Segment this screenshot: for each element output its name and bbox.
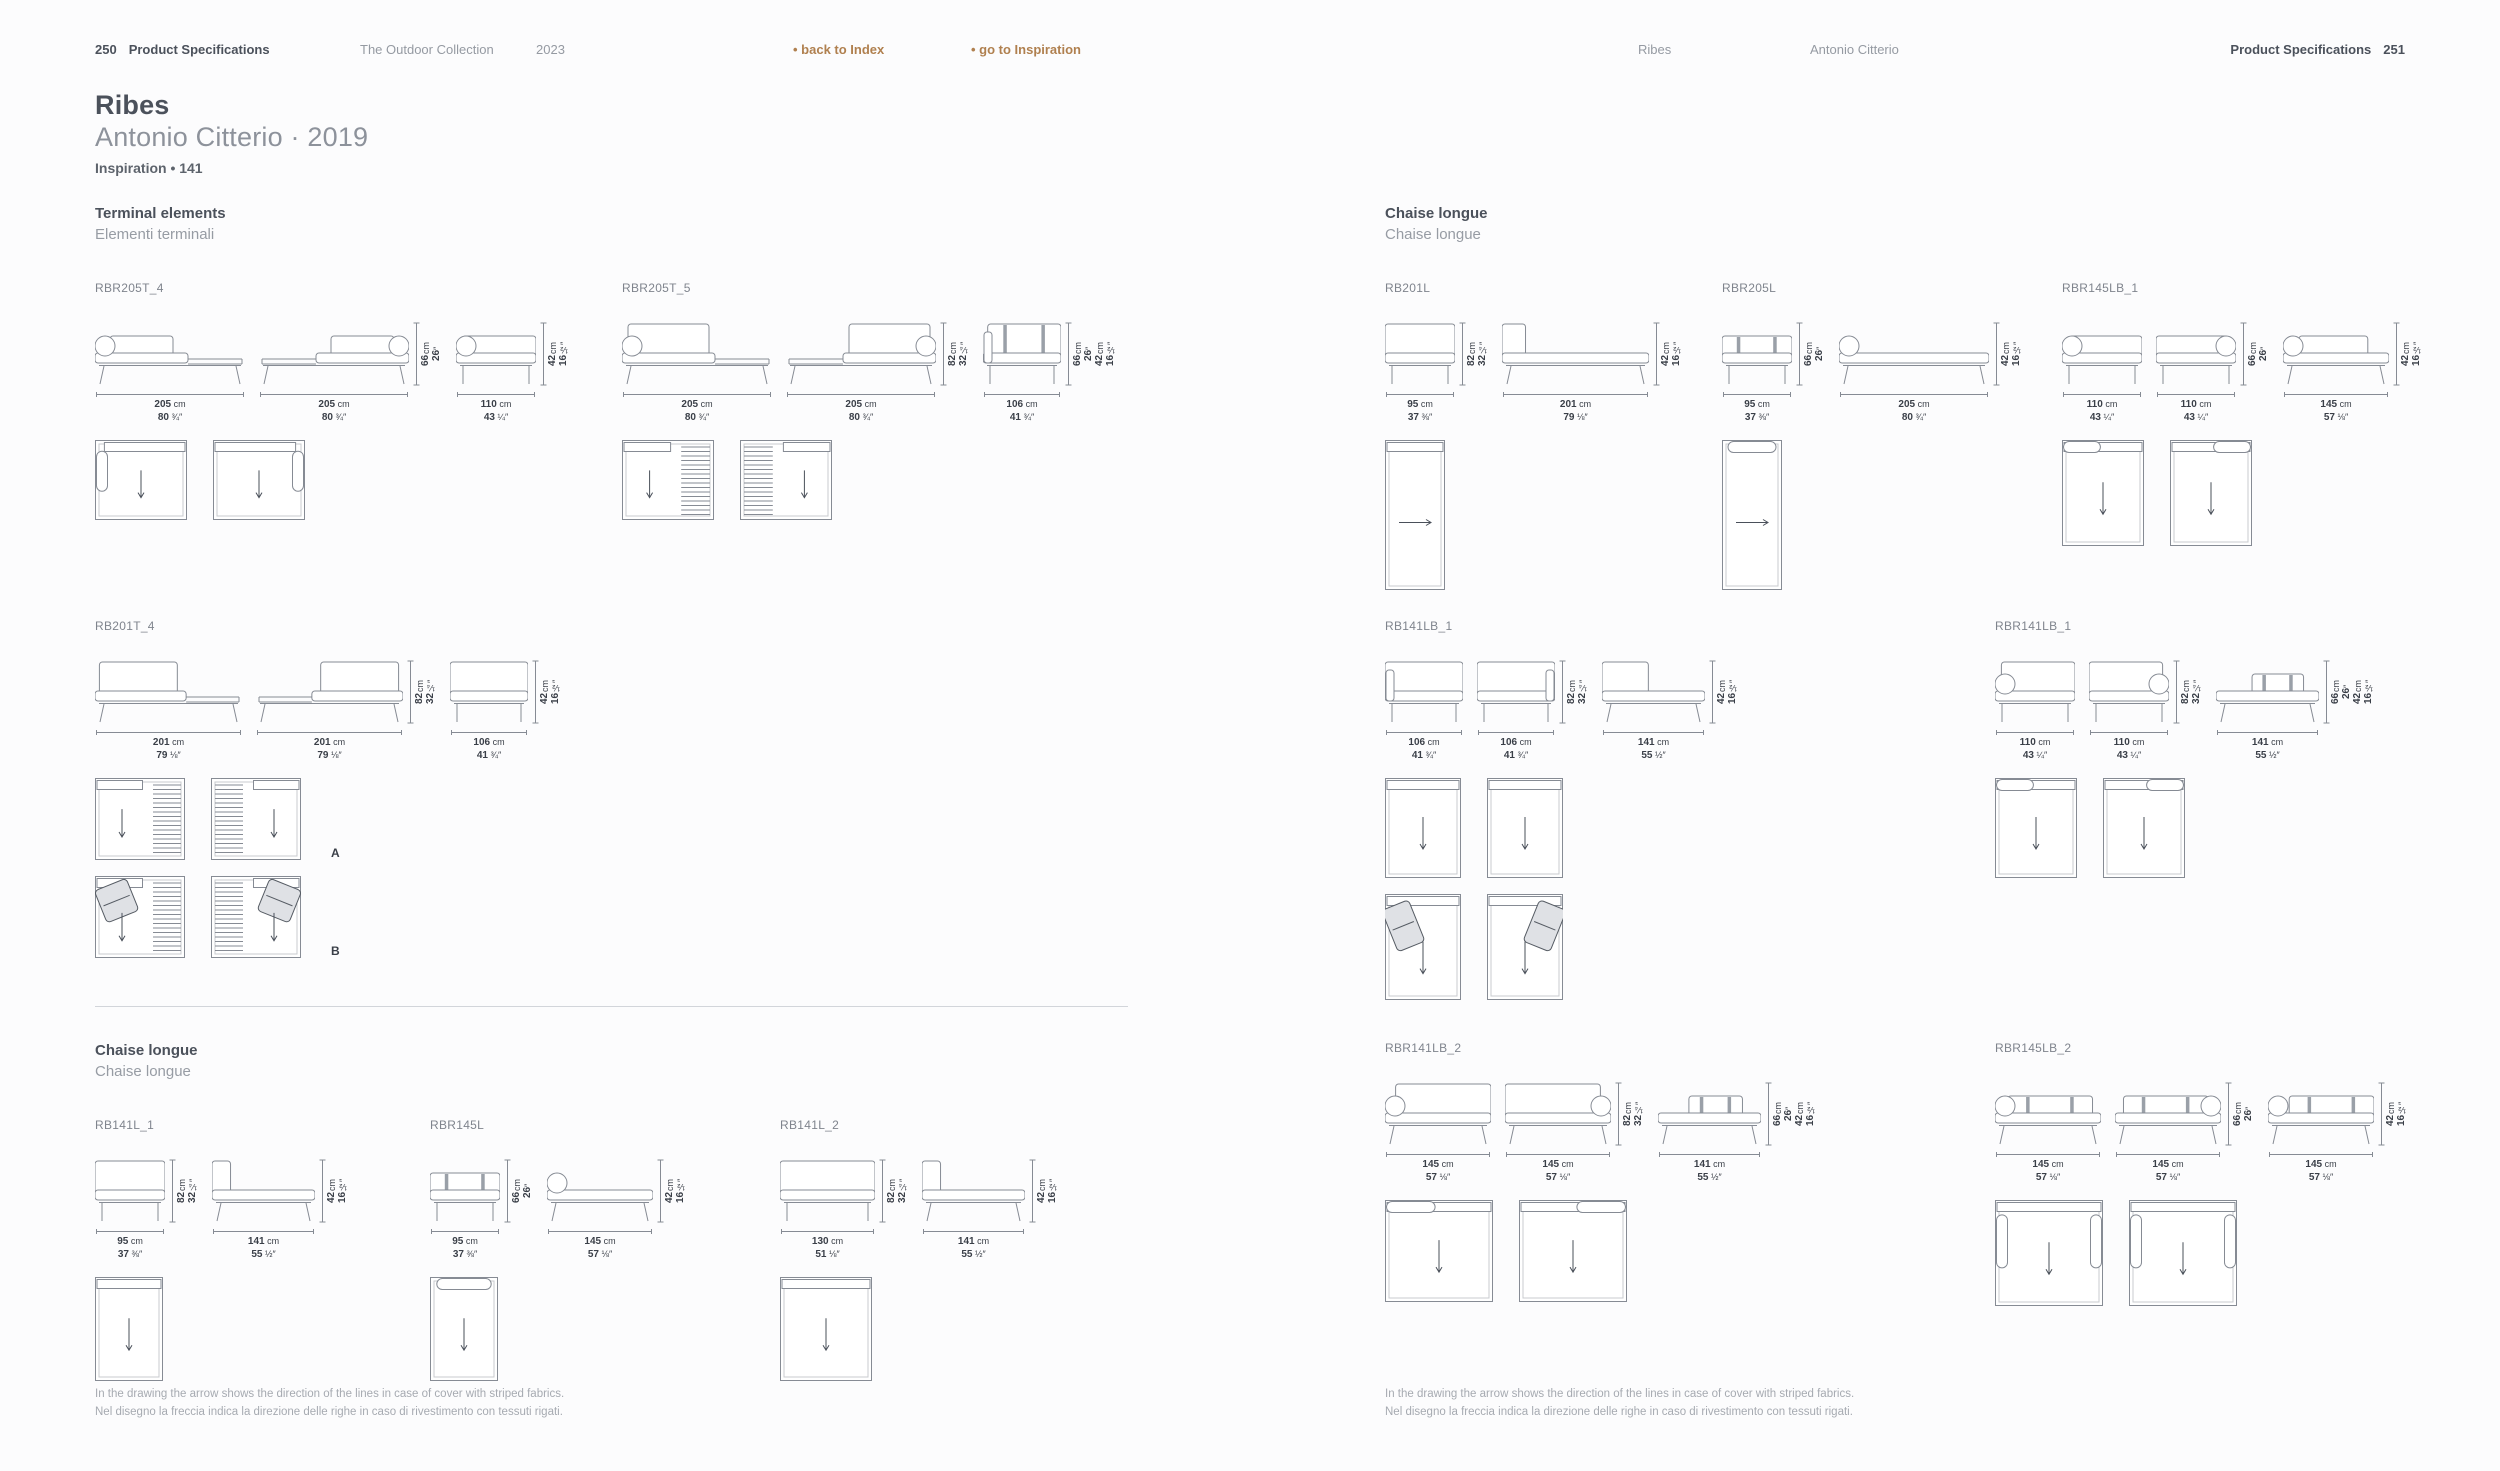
width-dimension: 205 cm80 ¾″	[1839, 387, 1989, 424]
elevation-view: 145 cm57 ⅛″	[2283, 321, 2389, 424]
elevation-drawing	[1505, 1081, 1611, 1147]
vertical-dimension: 66 cm26 ″	[1796, 321, 1825, 387]
product-block: RBR205T_4205 cm80 ¾″205 cm80 ¾″66 cm26 ″…	[95, 281, 569, 520]
view-group: 106 cm41 ¾″66 cm26 ″42 cm16 ½″	[983, 321, 1116, 424]
elevation-drawing	[1722, 321, 1792, 387]
width-dimension: 205 cm80 ¾″	[95, 387, 245, 424]
elevation-drawing	[212, 1158, 315, 1224]
plan-drawing	[95, 778, 185, 860]
dimension-cm: 42 cm	[2401, 321, 2411, 387]
plan-drawing	[780, 1277, 872, 1381]
dimension-cm: 66 cm	[2331, 659, 2341, 725]
dimension-line	[1065, 321, 1072, 387]
page-title-right: Product Specifications	[2230, 42, 2371, 57]
dimension-cm: 66 cm	[1804, 321, 1814, 387]
view-group: 141 cm55 ½″42 cm16 ½″	[1602, 659, 1738, 762]
product-code: RBR141LB_2	[1385, 1041, 1816, 1055]
dimension-line	[1840, 394, 1988, 395]
width-dimension: 110 cm43 ¼″	[456, 387, 536, 424]
dimension-inch: 79 ⅛″	[256, 749, 403, 762]
view-group: 141 cm55 ½″66 cm26 ″42 cm16 ½″	[1658, 1081, 1816, 1184]
dimension-line	[1615, 1081, 1622, 1147]
dimension-inch: 26 ″	[1815, 321, 1825, 387]
dimension-line	[2217, 732, 2318, 733]
plan-views	[1385, 894, 1738, 1000]
vertical-dimension: 66 cm26 ″	[413, 321, 442, 387]
dimension-line	[984, 394, 1060, 395]
width-dimension: 141 cm55 ½″	[922, 1224, 1025, 1261]
vertical-dimension: 66 cm26 ″42 cm16 ½″	[2323, 659, 2374, 725]
section-terminal-elements: Terminal elements Elementi terminali	[95, 203, 226, 245]
plan-views	[95, 440, 569, 520]
dimension-inch: 80 ¾″	[622, 411, 772, 424]
dimension-line	[2284, 394, 2388, 395]
width-dimension: 141 cm55 ½″	[1602, 725, 1705, 762]
product-code: RBR205L	[1722, 281, 2022, 295]
dimension-inch: 16 ½″	[2397, 1081, 2407, 1147]
dimension-inch: 57 ⅛″	[547, 1248, 653, 1261]
dimension-line	[2269, 1154, 2373, 1155]
elevation-view: 145 cm57 ⅛″	[1385, 1081, 1491, 1184]
dimension-cm: 66 cm	[1073, 321, 1083, 387]
dimension-inch: 32 ¼″	[959, 321, 969, 387]
dimension-inch: 57 ⅛″	[1995, 1171, 2101, 1184]
dimension-inch: 37 ⅜″	[430, 1248, 500, 1261]
vertical-dimension: 66 cm26 ″	[504, 1158, 533, 1224]
dimension-line	[532, 659, 539, 725]
dimension-cm: 110 cm	[2062, 398, 2142, 411]
elevation-view: 141 cm55 ½″	[1602, 659, 1705, 762]
dimension-cm: 106 cm	[1385, 736, 1463, 749]
section-title-en: Chaise longue	[1385, 203, 1488, 224]
elevation-view: 205 cm80 ¾″	[622, 321, 772, 424]
product-code: RB141L_2	[780, 1118, 1058, 1132]
view-group: 106 cm41 ¾″82 cm32 ¼″	[1477, 659, 1588, 762]
dimension-line	[623, 394, 771, 395]
page-number: 251	[2383, 42, 2405, 57]
view-group: 145 cm57 ⅛″82 cm32 ¼″	[1505, 1081, 1644, 1184]
elevation-drawing	[2156, 321, 2236, 387]
dimension-line	[879, 1158, 886, 1224]
vertical-dimension: 66 cm26 ″	[2240, 321, 2269, 387]
running-head-designer: Antonio Citterio	[1810, 42, 1899, 57]
view-group: 205 cm80 ¾″42 cm16 ½″	[1839, 321, 2022, 424]
dimension-line	[1029, 1158, 1036, 1224]
plan-views	[1385, 440, 1682, 590]
product-title: Ribes	[95, 90, 170, 121]
elevation-drawing	[1602, 659, 1705, 725]
dimension-cm: 66 cm	[512, 1158, 522, 1224]
elevation-drawing	[95, 1158, 165, 1224]
dimension-line	[787, 394, 935, 395]
page-number: 250	[95, 42, 117, 57]
elevation-view: 201 cm79 ⅛″	[256, 659, 403, 762]
view-group: 145 cm57 ⅛″42 cm16 ½″	[2283, 321, 2422, 424]
view-group: 106 cm41 ¾″42 cm16 ½″	[450, 659, 561, 762]
product-code: RB201L	[1385, 281, 1682, 295]
dimension-cm: 106 cm	[450, 736, 528, 749]
page-title-left: Product Specifications	[129, 42, 270, 57]
view-group: 110 cm43 ¼″	[2062, 321, 2142, 424]
dimension-cm: 141 cm	[212, 1235, 315, 1248]
elevation-view: 141 cm55 ½″	[922, 1158, 1025, 1261]
dimension-cm: 82 cm	[2181, 659, 2191, 725]
dimension-inch: 16 ½″	[2364, 659, 2374, 725]
plan-drawing	[2062, 440, 2144, 546]
elevation-drawing	[456, 321, 536, 387]
dimension-cm: 205 cm	[259, 398, 409, 411]
dimension-inch: 57 ⅛″	[1505, 1171, 1611, 1184]
plan-drawing	[1519, 1200, 1627, 1302]
width-dimension: 145 cm57 ⅛″	[2115, 1147, 2221, 1184]
dimension-cm: 42 cm	[2001, 321, 2011, 387]
section-divider	[95, 1006, 1128, 1007]
view-group: 201 cm79 ⅛″42 cm16 ½″	[1502, 321, 1682, 424]
width-dimension: 110 cm43 ¼″	[2156, 387, 2236, 424]
dimension-inch: 37 ⅜″	[95, 1248, 165, 1261]
dimension-inch: 41 ¾″	[983, 411, 1061, 424]
elevation-views: 106 cm41 ¾″106 cm41 ¾″82 cm32 ¼″141 cm55…	[1385, 659, 1738, 762]
dimension-line	[2063, 394, 2141, 395]
elevation-drawing	[2216, 659, 2319, 725]
elevation-drawing	[2268, 1081, 2374, 1147]
elevation-drawing	[1385, 659, 1463, 725]
dimension-line	[96, 732, 241, 733]
dimension-line	[431, 1231, 499, 1232]
designer-year: Antonio Citterio · 2019	[95, 122, 368, 153]
product-code: RBR145LB_2	[1995, 1041, 2407, 1055]
elevation-drawing	[2115, 1081, 2221, 1147]
plan-drawing	[211, 876, 301, 958]
catalog-spread: 250Product Specifications The Outdoor Co…	[0, 0, 2500, 1471]
width-dimension: 145 cm57 ⅛″	[2268, 1147, 2374, 1184]
dimension-cm: 205 cm	[786, 398, 936, 411]
dimension-cm: 95 cm	[1722, 398, 1792, 411]
elevation-view: 110 cm43 ¼″	[1995, 659, 2075, 762]
plan-drawing	[622, 440, 714, 520]
dimension-line	[457, 394, 535, 395]
elevation-drawing	[780, 1158, 875, 1224]
dimension-cm: 82 cm	[415, 659, 425, 725]
footer-note-en: In the drawing the arrow shows the direc…	[95, 1386, 564, 1404]
width-dimension: 201 cm79 ⅛″	[95, 725, 242, 762]
elevation-view: 141 cm55 ½″	[2216, 659, 2319, 762]
plan-variant-label: B	[331, 944, 340, 958]
dimension-inch: 16 ½″	[551, 659, 561, 725]
plan-drawing	[2170, 440, 2252, 546]
plan-drawing	[211, 778, 301, 860]
dimension-line	[1478, 732, 1554, 733]
vertical-dimension: 42 cm16 ½″	[2393, 321, 2422, 387]
view-group: 145 cm57 ⅛″	[1385, 1081, 1491, 1184]
product-code: RB141LB_1	[1385, 619, 1738, 633]
dimension-cm: 145 cm	[2115, 1158, 2221, 1171]
go-to-inspiration-link[interactable]: • go to Inspiration	[971, 42, 1081, 57]
elevation-views: 95 cm37 ⅜″66 cm26 ″205 cm80 ¾″42 cm16 ½″	[1722, 321, 2022, 424]
view-group: 95 cm37 ⅜″66 cm26 ″	[1722, 321, 1825, 424]
section-title-it: Chaise longue	[1385, 224, 1488, 245]
product-block: RBR205T_5205 cm80 ¾″205 cm80 ¾″82 cm32 ¼…	[622, 281, 1116, 520]
dimension-inch: 43 ¼″	[456, 411, 536, 424]
elevation-view: 106 cm41 ¾″	[450, 659, 528, 762]
dimension-line	[1386, 1154, 1490, 1155]
plan-views	[1385, 1200, 1816, 1302]
dimension-line	[96, 394, 244, 395]
vertical-dimension: 82 cm32 ¼″	[407, 659, 436, 725]
vertical-dimension: 42 cm16 ½″	[657, 1158, 686, 1224]
plan-views	[622, 440, 1116, 520]
dimension-line	[260, 394, 408, 395]
vertical-dimension: 42 cm16 ½″	[532, 659, 561, 725]
dimension-inch: 26 ″	[1084, 321, 1094, 387]
elevation-drawing	[547, 1158, 653, 1224]
view-group: 145 cm57 ⅛″	[1995, 1081, 2101, 1184]
back-to-index-link[interactable]: • back to Index	[793, 42, 884, 57]
elevation-views: 110 cm43 ¼″110 cm43 ¼″82 cm32 ¼″141 cm55…	[1995, 659, 2374, 762]
product-block: RBR141LB_2145 cm57 ⅛″145 cm57 ⅛″82 cm32 …	[1385, 1041, 1816, 1302]
plan-views	[2062, 440, 2422, 546]
dimension-line	[407, 659, 414, 725]
product-block: RBR145LB_1110 cm43 ¼″110 cm43 ¼″66 cm26 …	[2062, 281, 2422, 546]
dimension-inch: 16 ½″	[1048, 1158, 1058, 1224]
width-dimension: 95 cm37 ⅜″	[95, 1224, 165, 1261]
elevation-view: 201 cm79 ⅛″	[1502, 321, 1649, 424]
width-dimension: 145 cm57 ⅛″	[1505, 1147, 1611, 1184]
plan-drawing	[1385, 440, 1445, 590]
dimension-line	[319, 1158, 326, 1224]
view-group: 130 cm51 ⅛″82 cm32 ¼″	[780, 1158, 908, 1261]
dimension-inch: 79 ⅛″	[95, 749, 242, 762]
vertical-dimension: 82 cm32 ¼″	[1615, 1081, 1644, 1147]
width-dimension: 205 cm80 ¾″	[786, 387, 936, 424]
dimension-inch: 43 ¼″	[2156, 411, 2236, 424]
elevation-drawing	[786, 321, 936, 387]
plan-views	[430, 1277, 686, 1381]
dimension-inch: 26 ″	[2342, 659, 2352, 725]
width-dimension: 201 cm79 ⅛″	[256, 725, 403, 762]
elevation-drawing	[983, 321, 1061, 387]
dimension-cm: 205 cm	[622, 398, 772, 411]
dimension-cm: 42 cm	[1717, 659, 1727, 725]
elevation-drawing	[1502, 321, 1649, 387]
dimension-line	[451, 732, 527, 733]
dimension-cm: 141 cm	[1658, 1158, 1761, 1171]
dimension-inch: 26 ″	[2244, 1081, 2254, 1147]
plan-views	[1722, 440, 2022, 590]
elevation-view: 110 cm43 ¼″	[2062, 321, 2142, 424]
dimension-inch: 51 ⅛″	[780, 1248, 875, 1261]
dimension-line	[1503, 394, 1648, 395]
dimension-line	[1653, 321, 1660, 387]
elevation-views: 130 cm51 ⅛″82 cm32 ¼″141 cm55 ½″42 cm16 …	[780, 1158, 1058, 1261]
dimension-cm: 82 cm	[177, 1158, 187, 1224]
elevation-view: 95 cm37 ⅜″	[1385, 321, 1455, 424]
elevation-view: 205 cm80 ¾″	[95, 321, 245, 424]
dimension-cm: 95 cm	[1385, 398, 1455, 411]
section-title-it: Elementi terminali	[95, 224, 226, 245]
section-title-en: Terminal elements	[95, 203, 226, 224]
product-block: RBR205L95 cm37 ⅜″66 cm26 ″205 cm80 ¾″42 …	[1722, 281, 2022, 590]
dimension-line	[1459, 321, 1466, 387]
dimension-line	[2393, 321, 2400, 387]
dimension-cm: 110 cm	[1995, 736, 2075, 749]
dimension-inch: 32 ¼″	[1478, 321, 1488, 387]
view-group: 110 cm43 ¼″	[1995, 659, 2075, 762]
dimension-line	[213, 1231, 314, 1232]
dimension-inch: 57 ⅛″	[2115, 1171, 2221, 1184]
dimension-inch: 16 ½″	[2412, 321, 2422, 387]
dimension-line	[1996, 732, 2074, 733]
elevation-view: 141 cm55 ½″	[1658, 1081, 1761, 1184]
product-code: RBR145LB_1	[2062, 281, 2422, 295]
product-block: RB201T_4201 cm79 ⅛″201 cm79 ⅛″82 cm32 ¼″…	[95, 619, 561, 958]
product-code: RBR205T_5	[622, 281, 1116, 295]
vertical-dimension: 42 cm16 ½″	[319, 1158, 348, 1224]
dimension-line	[2116, 1154, 2220, 1155]
dimension-line	[2225, 1081, 2232, 1147]
dimension-cm: 82 cm	[1623, 1081, 1633, 1147]
section-chaise-longue-right: Chaise longue Chaise longue	[1385, 203, 1488, 245]
product-code: RBR141LB_1	[1995, 619, 2374, 633]
elevation-view: 145 cm57 ⅛″	[2115, 1081, 2221, 1184]
dimension-line	[413, 321, 420, 387]
elevation-views: 201 cm79 ⅛″201 cm79 ⅛″82 cm32 ¼″106 cm41…	[95, 659, 561, 762]
vertical-dimension: 82 cm32 ¼″	[2173, 659, 2202, 725]
elevation-view: 145 cm57 ⅛″	[1995, 1081, 2101, 1184]
elevation-view: 110 cm43 ¼″	[2156, 321, 2236, 424]
footer-note-right: In the drawing the arrow shows the direc…	[1385, 1386, 1854, 1422]
elevation-view: 205 cm80 ¾″	[259, 321, 409, 424]
elevation-drawing	[922, 1158, 1025, 1224]
width-dimension: 145 cm57 ⅛″	[2283, 387, 2389, 424]
elevation-drawing	[430, 1158, 500, 1224]
dimension-inch: 55 ½″	[2216, 749, 2319, 762]
plan-drawing	[213, 440, 305, 520]
vertical-dimension: 66 cm26 ″42 cm16 ½″	[1765, 1081, 1816, 1147]
dimension-inch: 16 ½″	[338, 1158, 348, 1224]
plan-drawing	[740, 440, 832, 520]
dimension-cm: 141 cm	[1602, 736, 1705, 749]
width-dimension: 145 cm57 ⅛″	[547, 1224, 653, 1261]
plan-drawing	[1385, 894, 1461, 1000]
dimension-line	[923, 1231, 1024, 1232]
dimension-cm: 42 cm	[327, 1158, 337, 1224]
dimension-line	[169, 1158, 176, 1224]
dimension-line	[1796, 321, 1803, 387]
elevation-view: 106 cm41 ¾″	[983, 321, 1061, 424]
plan-views	[780, 1277, 1058, 1381]
plan-views	[95, 1277, 348, 1381]
elevation-drawing	[1385, 1081, 1491, 1147]
elevation-views: 145 cm57 ⅛″145 cm57 ⅛″66 cm26 ″145 cm57 …	[1995, 1081, 2407, 1184]
dimension-inch: 80 ¾″	[95, 411, 245, 424]
dimension-inch: 32 ¼″	[1634, 1081, 1644, 1147]
elevation-views: 145 cm57 ⅛″145 cm57 ⅛″82 cm32 ¼″141 cm55…	[1385, 1081, 1816, 1184]
dimension-cm: 95 cm	[430, 1235, 500, 1248]
dimension-line	[2378, 1081, 2385, 1147]
elevation-drawing	[2283, 321, 2389, 387]
dimension-inch: 55 ½″	[212, 1248, 315, 1261]
view-group: 205 cm80 ¾″66 cm26 ″	[259, 321, 442, 424]
elevation-view: 141 cm55 ½″	[212, 1158, 315, 1261]
dimension-inch: 41 ¾″	[450, 749, 528, 762]
elevation-drawing	[2089, 659, 2169, 725]
dimension-inch: 26 ″	[1784, 1081, 1794, 1147]
width-dimension: 145 cm57 ⅛″	[1995, 1147, 2101, 1184]
dimension-cm: 205 cm	[1839, 398, 1989, 411]
dimension-cm: 130 cm	[780, 1235, 875, 1248]
dimension-inch: 43 ¼″	[1995, 749, 2075, 762]
page-number-right: Product Specifications251	[2230, 42, 2405, 57]
footer-note-it: Nel disegno la freccia indica la direzio…	[95, 1404, 564, 1422]
view-group: 110 cm43 ¼″66 cm26 ″	[2156, 321, 2269, 424]
vertical-dimension: 82 cm32 ¼″	[940, 321, 969, 387]
width-dimension: 95 cm37 ⅜″	[1385, 387, 1455, 424]
view-group: 141 cm55 ½″42 cm16 ½″	[212, 1158, 348, 1261]
product-block: RBR141LB_1110 cm43 ¼″110 cm43 ¼″82 cm32 …	[1995, 619, 2374, 878]
dimension-line	[2173, 659, 2180, 725]
dimension-inch: 57 ⅛″	[2283, 411, 2389, 424]
width-dimension: 106 cm41 ¾″	[1385, 725, 1463, 762]
width-dimension: 130 cm51 ⅛″	[780, 1224, 875, 1261]
dimension-inch: 16 ½″	[559, 321, 569, 387]
dimension-cm: 145 cm	[547, 1235, 653, 1248]
width-dimension: 95 cm37 ⅜″	[1722, 387, 1792, 424]
dimension-inch: 32 ¼″	[2192, 659, 2202, 725]
dimension-line	[2240, 321, 2247, 387]
view-group: 95 cm37 ⅜″66 cm26 ″	[430, 1158, 533, 1261]
dimension-inch: 32 ¼″	[898, 1158, 908, 1224]
elevation-drawing	[450, 659, 528, 725]
elevation-view: 205 cm80 ¾″	[786, 321, 936, 424]
dimension-line	[96, 1231, 164, 1232]
plan-variant-label: A	[331, 846, 340, 860]
dimension-inch: 57 ⅛″	[1385, 1171, 1491, 1184]
dimension-inch: 37 ⅜″	[1722, 411, 1792, 424]
footer-note-left: In the drawing the arrow shows the direc…	[95, 1386, 564, 1422]
page-number-left: 250Product Specifications	[95, 42, 270, 57]
dimension-inch: 32 ¼″	[1578, 659, 1588, 725]
dimension-line	[940, 321, 947, 387]
dimension-line	[540, 321, 547, 387]
elevation-drawing	[1995, 1081, 2101, 1147]
elevation-drawing	[1477, 659, 1555, 725]
elevation-view: 95 cm37 ⅜″	[95, 1158, 165, 1261]
dimension-line	[548, 1231, 652, 1232]
dimension-inch: 43 ¼″	[2089, 749, 2169, 762]
dimension-inch: 43 ¼″	[2062, 411, 2142, 424]
plan-drawing	[2103, 778, 2185, 878]
elevation-drawing	[622, 321, 772, 387]
dimension-cm: 42 cm	[665, 1158, 675, 1224]
vertical-dimension: 42 cm16 ½″	[2378, 1081, 2407, 1147]
dimension-cm: 42 cm	[1795, 1081, 1805, 1147]
vertical-dimension: 82 cm32 ¼″	[169, 1158, 198, 1224]
plan-drawing	[430, 1277, 498, 1381]
inspiration-ref-link[interactable]: Inspiration • 141	[95, 160, 203, 176]
dimension-line	[781, 1231, 874, 1232]
dimension-cm: 66 cm	[2248, 321, 2258, 387]
dimension-line	[1386, 732, 1462, 733]
footer-note-en: In the drawing the arrow shows the direc…	[1385, 1386, 1854, 1404]
dimension-line	[1993, 321, 2000, 387]
dimension-cm: 42 cm	[1095, 321, 1105, 387]
view-group: 201 cm79 ⅛″	[95, 659, 242, 762]
plan-views: A	[95, 778, 561, 860]
vertical-dimension: 82 cm32 ¼″	[1459, 321, 1488, 387]
dimension-inch: 16 ½″	[1672, 321, 1682, 387]
dimension-cm: 205 cm	[95, 398, 245, 411]
